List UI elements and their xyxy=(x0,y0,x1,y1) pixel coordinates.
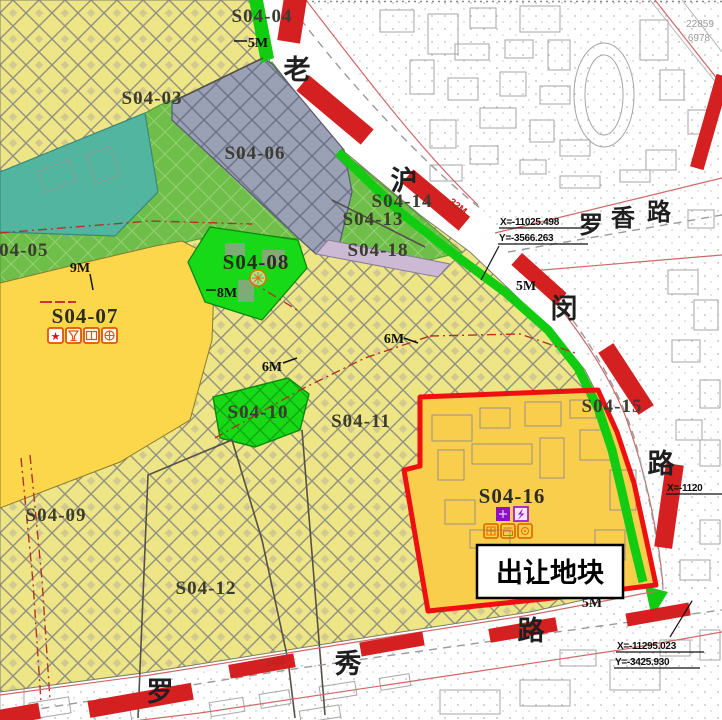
width-label-5m-top: 5M xyxy=(248,36,268,51)
red-star-icon: ★ xyxy=(51,331,61,343)
parcel-label-s04-18: S04-18 xyxy=(348,240,409,261)
roadname-hu: 沪 xyxy=(391,166,418,197)
parcel-label-s04-09: S04-09 xyxy=(26,505,87,526)
width-label-6m-b: 6M xyxy=(384,332,404,347)
roadname-lao: 老 xyxy=(284,55,311,86)
coord-x-right-clipped: X=-1120 xyxy=(667,483,703,494)
tiny-red-text-decor xyxy=(40,301,76,303)
roadname-luoxiang-1: 罗 xyxy=(579,211,603,239)
parcel-label-s04-05: S04-05 xyxy=(0,240,48,261)
flower-circle-icon xyxy=(250,270,266,286)
survey-number-1: 22859 xyxy=(686,19,714,30)
coord-x-top: X=-11025.498 xyxy=(500,217,560,228)
planning-map: S04-03 S04-04 S04-05 S04-06 S04-07 S04-0… xyxy=(0,0,722,720)
parcel-label-s04-07: S04-07 xyxy=(52,304,119,328)
roadname-luoxiang-3: 路 xyxy=(647,198,672,226)
meter-box-icon-dot xyxy=(524,530,526,532)
export-parcel-callout: 出让地块 xyxy=(477,545,623,598)
roadname-luoxiu-3: 路 xyxy=(518,615,546,647)
roadname-luoxiu-1: 罗 xyxy=(147,677,174,708)
parcel-label-s04-15: S04-15 xyxy=(582,396,643,417)
roadname-min: 闵 xyxy=(551,294,578,325)
width-label-5m-junction: 5M xyxy=(516,279,536,294)
width-label-6m-a: 6M xyxy=(262,360,282,375)
coord-y-top: Y=-3566.263 xyxy=(499,233,554,244)
parcel-label-s04-13: S04-13 xyxy=(343,209,404,230)
parcel-label-s04-06: S04-06 xyxy=(225,143,286,164)
width-label-9m: 9M xyxy=(70,261,90,276)
parcel-label-s04-11: S04-11 xyxy=(331,411,391,432)
parcel-label-s04-16: S04-16 xyxy=(479,484,546,508)
export-label-text: 出让地块 xyxy=(496,558,605,589)
survey-number-2: 6978 xyxy=(688,33,711,44)
roadname-lu: 路 xyxy=(648,448,676,480)
coord-x-bottom: X=-11295.023 xyxy=(617,641,677,652)
coord-y-bottom: Y=-3425.930 xyxy=(615,657,670,668)
roadname-luoxiang-2: 香 xyxy=(611,204,636,232)
parcel-label-s04-04: S04-04 xyxy=(232,6,293,27)
width-label-8m: 8M xyxy=(217,286,237,301)
parcel-label-s04-12: S04-12 xyxy=(176,578,237,599)
parcel-label-s04-10: S04-10 xyxy=(228,402,289,423)
roadname-luoxiu-2: 秀 xyxy=(334,649,362,680)
parcel-label-s04-03: S04-03 xyxy=(122,88,183,109)
